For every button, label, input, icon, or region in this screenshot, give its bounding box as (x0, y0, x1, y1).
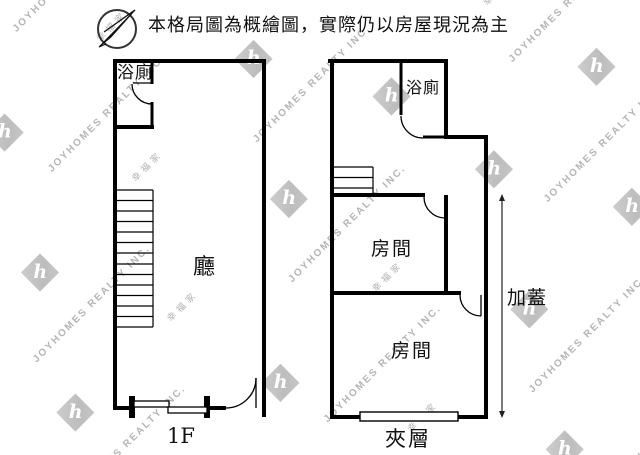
floor-plan-drawing (0, 0, 640, 455)
north-arrow-icon (90, 3, 146, 55)
bathroom-label-1f: 浴廁 (117, 64, 153, 83)
extension-range-arrow (499, 194, 505, 418)
living-room-label: 廳 (193, 256, 215, 280)
door-arc (226, 378, 256, 408)
door-arc (424, 197, 445, 218)
outer-walls (113, 59, 266, 417)
door-arc (401, 116, 423, 138)
stairs (116, 190, 153, 327)
entry-door (226, 378, 256, 408)
window (360, 412, 458, 421)
stairs-small (334, 167, 373, 194)
room2-walls (330, 293, 481, 316)
floor-label-1f: 1F (167, 425, 195, 448)
floor-label-mezzanine: 夾層 (385, 428, 431, 451)
door-arc (460, 295, 481, 316)
bathroom-walls (401, 59, 446, 138)
room2-label: 房間 (391, 341, 433, 362)
room1-label: 房間 (371, 239, 413, 260)
sliding-door (134, 401, 207, 413)
bathroom-label-mezz: 浴廁 (406, 79, 440, 97)
door-arc (132, 84, 152, 104)
floor-plan-mezzanine (328, 59, 505, 421)
floorplan-image: h幸福家hh幸福家hh幸福家hh幸福家hh幸福家JOYHOMES REALTY … (0, 0, 640, 455)
disclaimer-note: 本格局圖為概繪圖，實際仍以房屋現況為主 (148, 16, 509, 36)
addition-label: 加蓋 (507, 288, 547, 309)
floor-plan-1f (113, 59, 266, 418)
